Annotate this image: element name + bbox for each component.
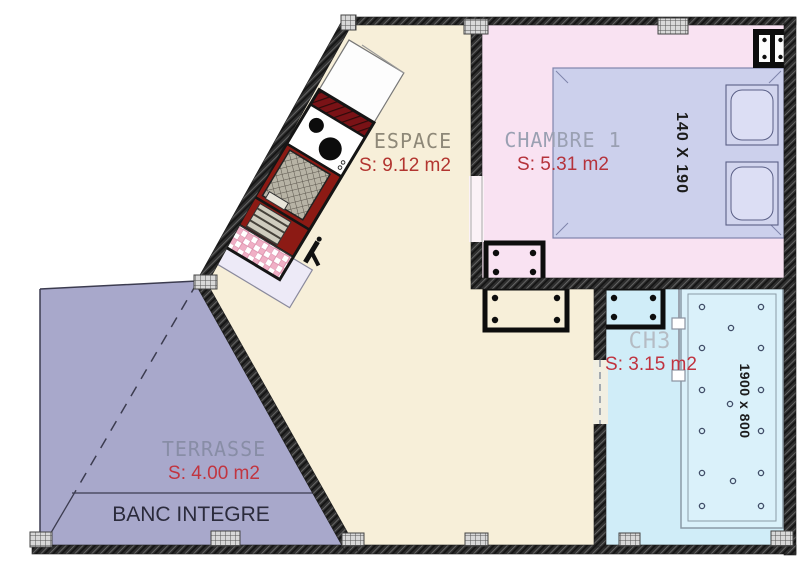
post (464, 19, 488, 34)
bed-dimension-label: 140 X 190 (673, 112, 690, 194)
chambre1-area: S: 5.31 m2 (517, 154, 609, 175)
bed (553, 68, 784, 238)
terrasse-area: S: 4.00 m2 (168, 463, 260, 484)
floor-plan-drawing: ESPACE S: 9.12 m2 CHAMBRE 1 S: 5.31 m2 C… (0, 0, 800, 563)
post (658, 18, 688, 34)
post (619, 533, 640, 546)
post (465, 533, 488, 546)
post (30, 532, 52, 547)
chambre1-label: CHAMBRE 1 (504, 128, 621, 152)
shower-tray (672, 288, 783, 528)
espace-label: ESPACE (374, 129, 452, 153)
pillow (726, 162, 778, 225)
post (211, 531, 240, 546)
door-jamb (672, 318, 685, 329)
terrasse-label: TERRASSE (162, 437, 266, 461)
wall-mid (471, 278, 795, 289)
ch3-label: CH3 (629, 329, 672, 354)
floor-plan-page: ESPACE S: 9.12 m2 CHAMBRE 1 S: 5.31 m2 C… (0, 0, 800, 563)
espace-area: S: 9.12 m2 (359, 155, 451, 176)
post (771, 531, 793, 546)
shower-dimension-label: 1900 x 800 (737, 363, 753, 438)
wall-bottom (32, 545, 796, 554)
bench-label: BANC INTEGRE (112, 503, 270, 526)
post (194, 275, 217, 289)
post (342, 533, 364, 546)
ch3-area: S: 3.15 m2 (605, 354, 697, 375)
pillow (726, 85, 778, 145)
wall-top (344, 17, 796, 25)
post (341, 15, 356, 30)
